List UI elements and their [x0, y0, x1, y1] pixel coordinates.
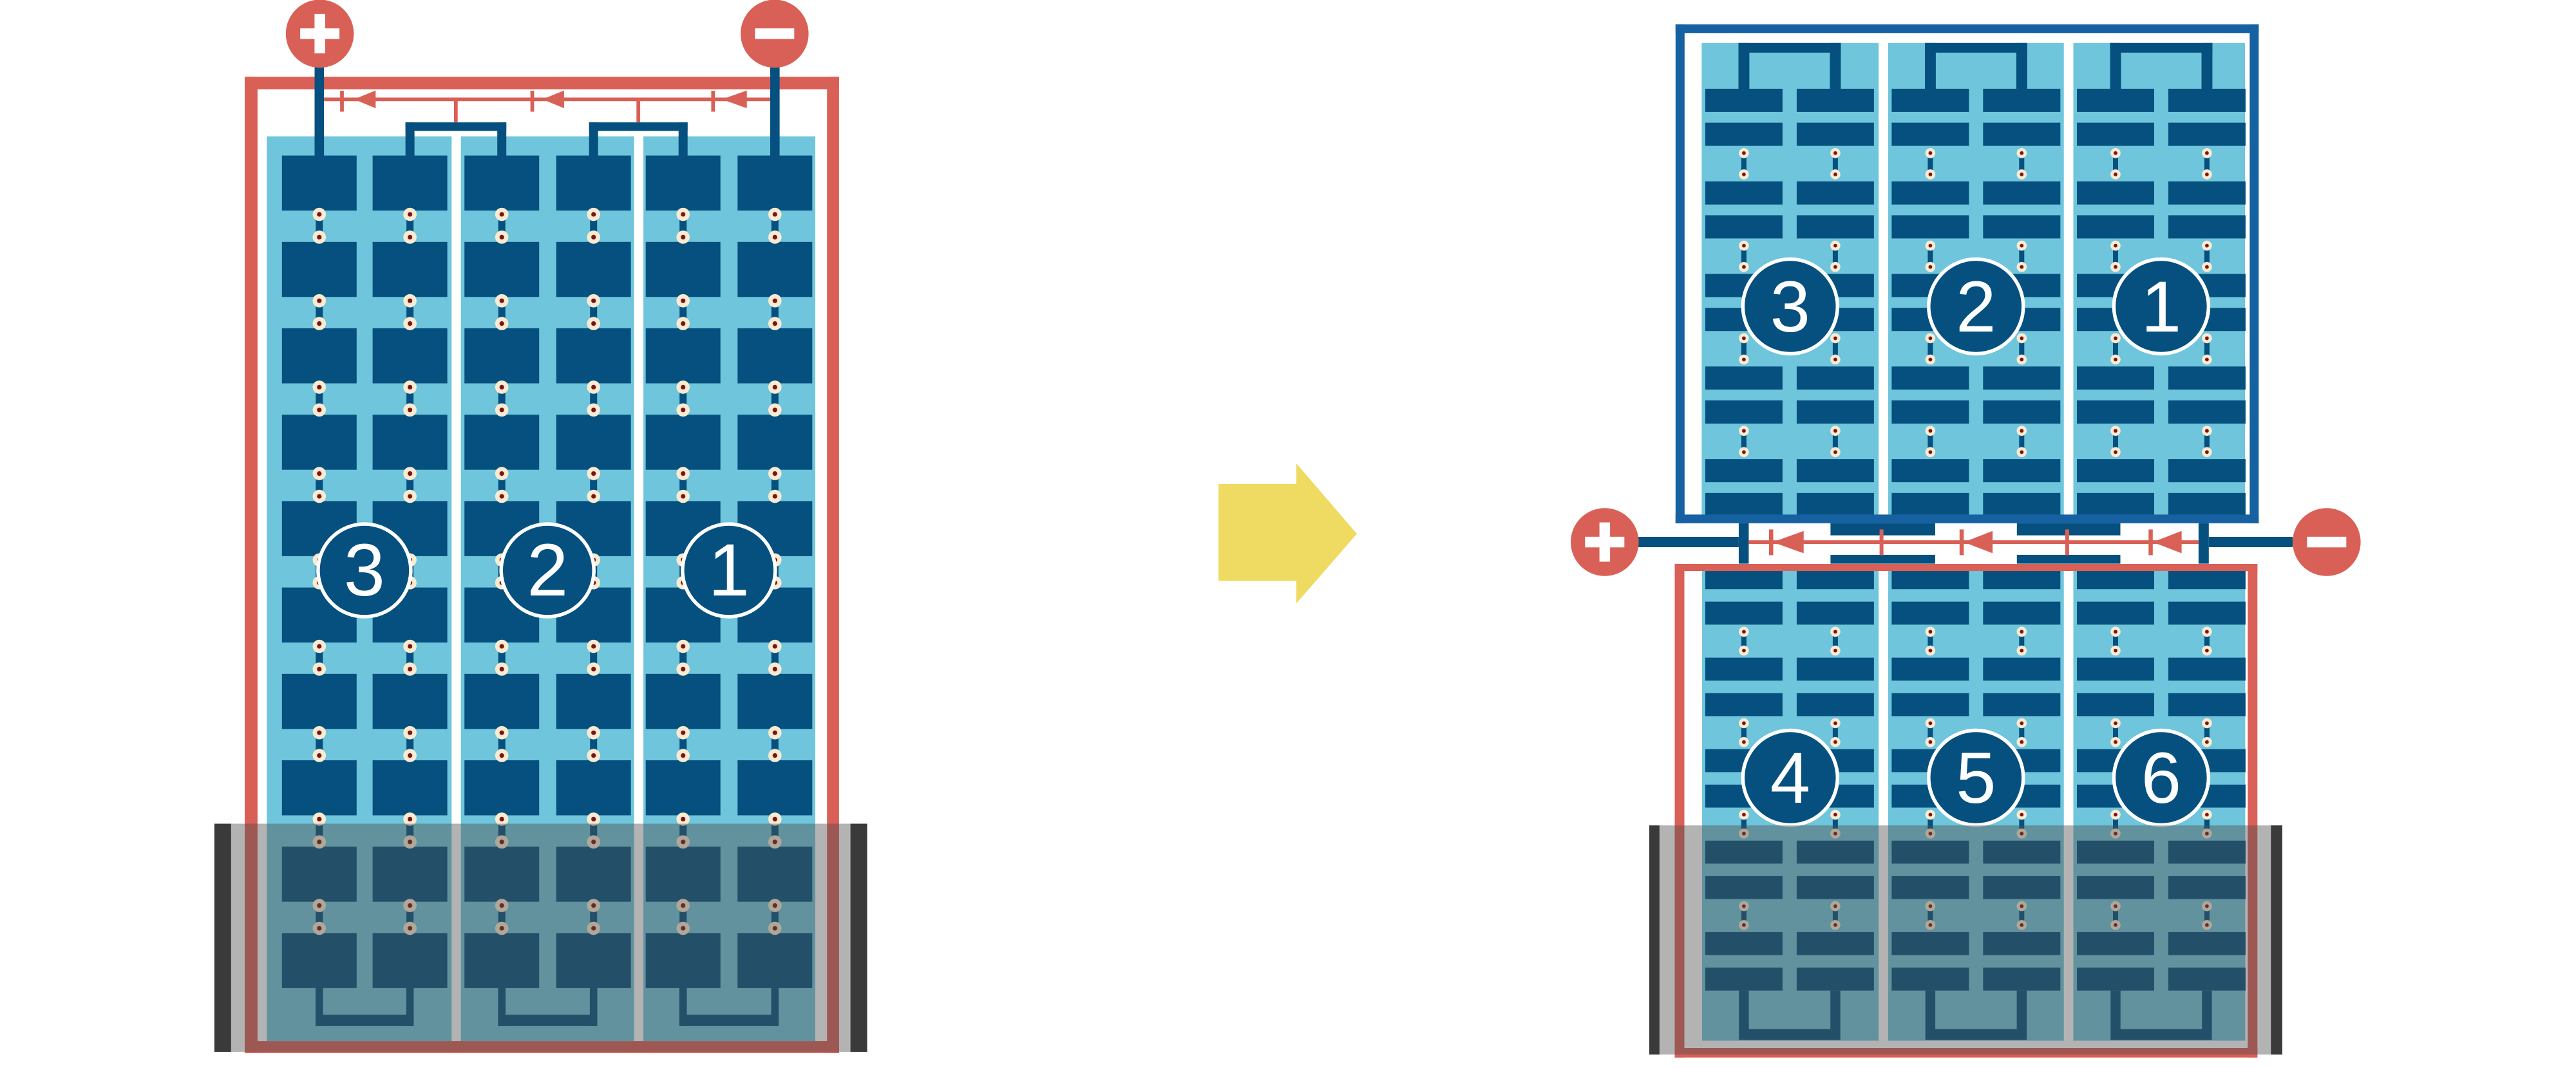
- svg-text:1: 1: [708, 529, 750, 612]
- svg-text:3: 3: [1770, 267, 1810, 347]
- svg-text:3: 3: [344, 529, 385, 612]
- svg-text:5: 5: [1956, 738, 1996, 818]
- svg-text:6: 6: [2141, 738, 2181, 818]
- svg-text:2: 2: [527, 529, 568, 612]
- svg-text:1: 1: [2141, 267, 2181, 347]
- svg-text:4: 4: [1770, 738, 1810, 818]
- svg-text:2: 2: [1956, 267, 1996, 347]
